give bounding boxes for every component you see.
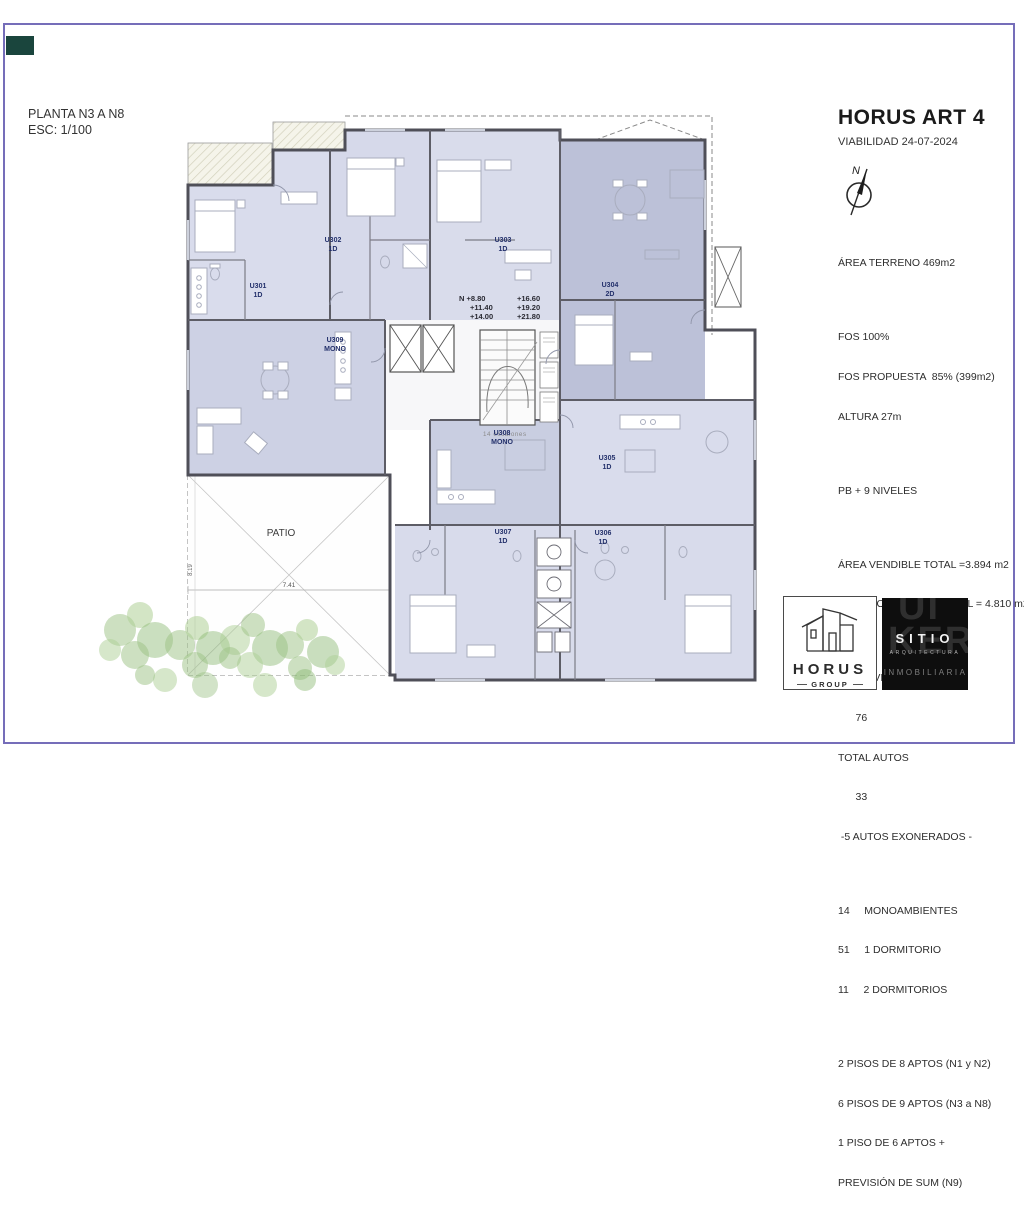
svg-text:2D: 2D [606,291,615,298]
unit-label: U307 [495,529,512,536]
svg-text:N +8.80: N +8.80 [459,294,485,303]
info-line: -5 AUTOS EXONERADOS - [838,831,1018,844]
info-line: 1 PISO DE 6 APTOS + [838,1137,1018,1150]
unit-label: U302 [325,237,342,244]
staircase: 14 escalones [480,330,537,438]
svg-text:+11.40: +11.40 [470,303,493,312]
sitio-arquitectura-logo: UI KER SITIO ARQUITECTURA INMOBILIARIA [882,598,968,690]
info-line: ÁREA TERRENO 469m2 [838,257,1018,270]
dash-decoration [853,684,863,685]
sitio-logo-sub: ARQUITECTURA [882,650,968,656]
svg-text:MONO: MONO [491,439,513,446]
svg-text:1D: 1D [603,464,612,471]
unit-label: U305 [599,455,616,462]
project-title: HORUS ART 4 [838,106,1018,130]
svg-text:+21.80: +21.80 [517,312,540,321]
svg-text:1D: 1D [499,246,508,253]
building-sketch-icon [795,603,865,655]
info-line: TOTAL AUTOS [838,752,1018,765]
info-line [838,450,1018,458]
svg-text:MONO: MONO [324,346,346,353]
unit-label: U308 [494,430,511,437]
project-data-lines: ÁREA TERRENO 469m2 FOS 100% FOS PROPUEST… [838,231,1018,1216]
info-line: 33 [838,791,1018,804]
floor-plan-drawing: PATIO 7.41 8.19 14 escalones [85,100,775,715]
balcony-hatch-left [188,143,272,185]
info-line [838,524,1018,532]
unit-label: U301 [250,283,267,290]
svg-text:1D: 1D [329,246,338,253]
info-line: ÁREA VENDIBLE TOTAL =3.894 m2 [838,559,1018,572]
sitio-logo-tagline: INMOBILIARIA [882,668,968,677]
info-line: 14 MONOAMBIENTES [838,905,1018,918]
sitio-logo-name: SITIO [882,631,968,646]
service-ducts [540,332,558,422]
info-line [838,870,1018,878]
svg-text:1D: 1D [599,539,608,546]
info-line: 76 [838,712,1018,725]
info-line: 11 2 DORMITORIOS [838,984,1018,997]
patio-dim-vertical: 8.19 [188,564,194,576]
svg-text:+19.20: +19.20 [517,303,540,312]
patio-dim-horizontal: 7.41 [283,582,296,589]
unit-label: U309 [327,337,344,344]
patio-label: PATIO [267,528,296,539]
north-letter: N [852,165,860,177]
svg-text:+14.00: +14.00 [470,312,493,321]
svg-text:1D: 1D [254,292,263,299]
info-line: FOS PROPUESTA 85% (399m2) [838,371,1018,384]
info-line: ALTURA 27m [838,411,1018,424]
dash-decoration [797,684,807,685]
info-line: 2 PISOS DE 8 APTOS (N1 y N2) [838,1058,1018,1071]
info-line: 6 PISOS DE 9 APTOS (N3 a N8) [838,1098,1018,1111]
svg-text:+16.60: +16.60 [517,294,540,303]
info-line [838,297,1018,305]
unit-label: U304 [602,282,619,289]
north-arrow-icon: N [840,163,880,217]
balcony-hatch-upper [273,122,345,150]
info-line: 51 1 DORMITORIO [838,944,1018,957]
info-line: FOS 100% [838,331,1018,344]
info-line: PREVISIÓN DE SUM (N9) [838,1177,1018,1190]
unit-label: U303 [495,237,512,244]
svg-text:1D: 1D [499,538,508,545]
project-subtitle: VIABILIDAD 24-07-2024 [838,136,1018,148]
balcony-shaft-right [715,247,741,307]
info-line [838,1024,1018,1032]
info-line: PB + 9 NIVELES [838,485,1018,498]
corner-color-mark [6,36,34,55]
horus-logo-sub: GROUP [784,680,876,689]
unit-label: U306 [595,530,612,537]
horus-group-logo: HORUS GROUP [783,596,877,690]
horus-logo-name: HORUS [784,661,876,678]
